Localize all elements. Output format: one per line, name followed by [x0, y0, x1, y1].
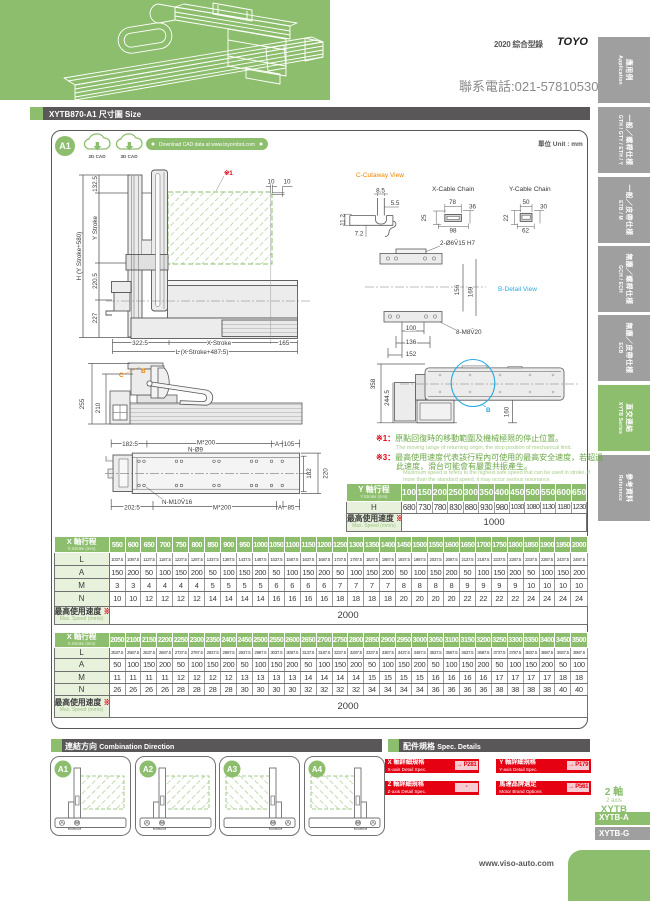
svg-text:H (Y Stroke+580): H (Y Stroke+580)	[76, 232, 83, 281]
svg-text:136: 136	[406, 339, 417, 346]
svg-text:160: 160	[504, 406, 511, 417]
svg-text:244.5: 244.5	[384, 390, 391, 406]
svg-text:10: 10	[283, 179, 291, 186]
svg-text:50: 50	[522, 199, 530, 206]
svg-text:Y Stroke: Y Stroke	[92, 215, 99, 240]
svg-text:182.5: 182.5	[122, 441, 138, 448]
svg-text:25: 25	[421, 214, 428, 222]
svg-text:L (X Stroke+487.5): L (X Stroke+487.5)	[176, 349, 229, 356]
svg-text:85: 85	[287, 505, 295, 512]
svg-text:※1: ※1	[224, 169, 233, 177]
svg-text:2-Ø6V̄15 H7: 2-Ø6V̄15 H7	[440, 239, 475, 247]
svg-text:N-Ø9: N-Ø9	[188, 447, 204, 454]
svg-text:98: 98	[449, 228, 457, 235]
svg-text:220: 220	[323, 468, 330, 479]
svg-text:62: 62	[522, 228, 530, 235]
svg-text:227: 227	[92, 312, 99, 323]
svg-text:M*200: M*200	[197, 440, 216, 447]
svg-text:156: 156	[454, 284, 461, 295]
svg-text:Download CAD data at www.toyor: Download CAD data at www.toyorobot.com	[159, 142, 255, 148]
svg-text:B-Detail View: B-Detail View	[498, 286, 537, 293]
svg-text:N-M10V̄16: N-M10V̄16	[162, 498, 193, 506]
svg-text:5.5: 5.5	[391, 200, 400, 207]
svg-text:169: 169	[468, 286, 475, 297]
svg-text:A: A	[278, 505, 283, 512]
svg-text:A: A	[275, 441, 280, 448]
svg-text:210: 210	[95, 402, 102, 413]
svg-text:2D CAD: 2D CAD	[88, 154, 106, 159]
svg-text:3D CAD: 3D CAD	[120, 154, 138, 159]
svg-text:A1: A1	[58, 765, 69, 774]
svg-text:182: 182	[306, 468, 313, 479]
svg-text:A3: A3	[227, 765, 238, 774]
svg-text:8.5: 8.5	[376, 188, 385, 195]
svg-text:100: 100	[406, 325, 417, 332]
svg-text:220.5: 220.5	[92, 273, 99, 289]
svg-text:A2: A2	[143, 765, 154, 774]
svg-text:A4: A4	[312, 765, 323, 774]
svg-text:105: 105	[284, 441, 295, 448]
svg-text:152: 152	[406, 351, 417, 358]
svg-text:X-Cable Chain: X-Cable Chain	[432, 186, 475, 193]
svg-text:30: 30	[540, 204, 548, 211]
svg-text:322.5: 322.5	[132, 340, 148, 347]
svg-text:36: 36	[469, 204, 477, 211]
svg-text:B: B	[486, 407, 491, 414]
svg-text:165: 165	[279, 340, 290, 347]
svg-text:X Stroke: X Stroke	[207, 340, 232, 347]
svg-text:202.5: 202.5	[124, 505, 140, 512]
svg-text:358: 358	[370, 378, 377, 389]
svg-text:C: C	[119, 372, 124, 379]
svg-text:Y-Cable Chain: Y-Cable Chain	[509, 186, 551, 193]
svg-text:255: 255	[79, 398, 86, 409]
svg-text:22: 22	[503, 214, 510, 222]
svg-text:M*200: M*200	[213, 505, 232, 512]
svg-text:B: B	[141, 368, 146, 375]
svg-text:11.2: 11.2	[340, 214, 347, 226]
svg-text:8-M8V̄20: 8-M8V̄20	[456, 328, 482, 336]
svg-text:7.2: 7.2	[355, 231, 364, 238]
svg-text:132.5: 132.5	[92, 176, 99, 192]
svg-text:10: 10	[267, 179, 275, 186]
svg-text:78: 78	[449, 199, 457, 206]
svg-text:C-Cutaway View: C-Cutaway View	[356, 172, 404, 179]
